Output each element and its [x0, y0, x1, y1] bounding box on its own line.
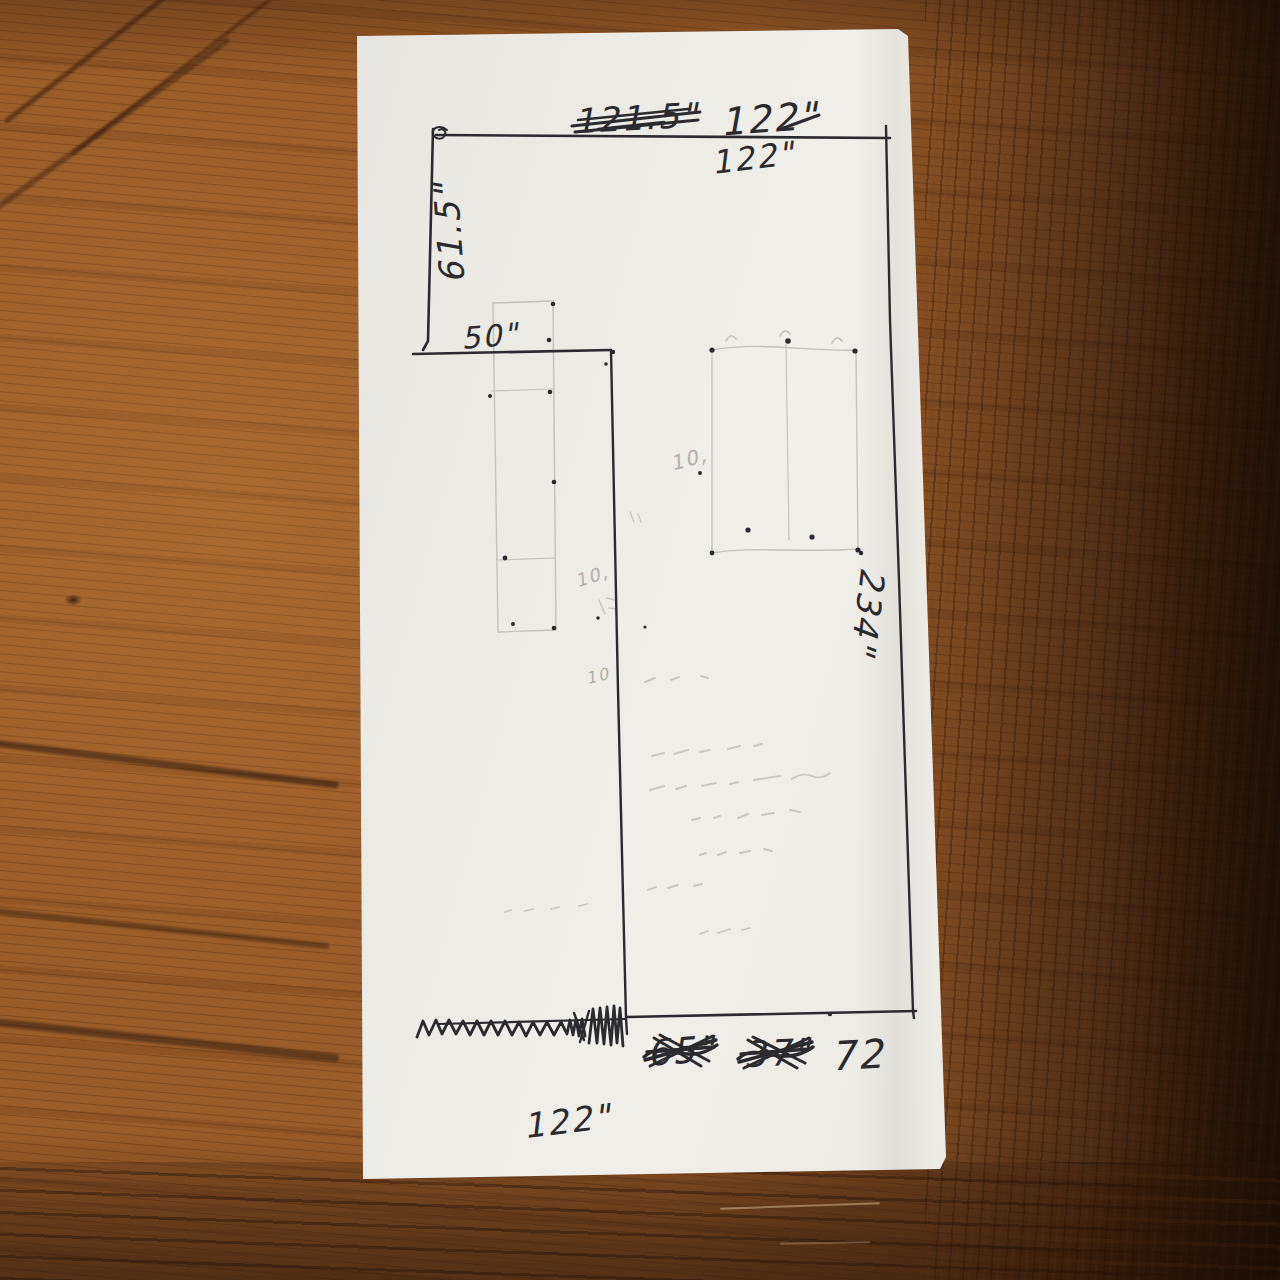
wood-grain-streak — [0, 738, 339, 789]
wood-shadow-band — [925, 0, 1280, 1280]
label-bottom-crossed-out-2: 37" — [742, 1031, 812, 1076]
label-left-height: 61.5" — [426, 181, 473, 285]
wood-bottom-band — [0, 1162, 1280, 1280]
label-bottom-crossed-out-1: 65" — [645, 1028, 716, 1074]
label-bottom-segment: 72 — [828, 1031, 885, 1080]
wood-grain-streak — [71, 0, 310, 156]
wood-knot — [64, 594, 82, 606]
label-notch-width: 50" — [460, 316, 521, 356]
wood-grain-streak — [0, 1016, 339, 1063]
label-top-crossed-out: 121.5" — [573, 95, 700, 141]
wood-grain-streak — [0, 37, 231, 230]
wood-grain-streak — [0, 907, 329, 950]
wood-table: 121.5" 122" 122" 61.5" 50" 234" 65" 37" … — [0, 0, 1280, 1280]
